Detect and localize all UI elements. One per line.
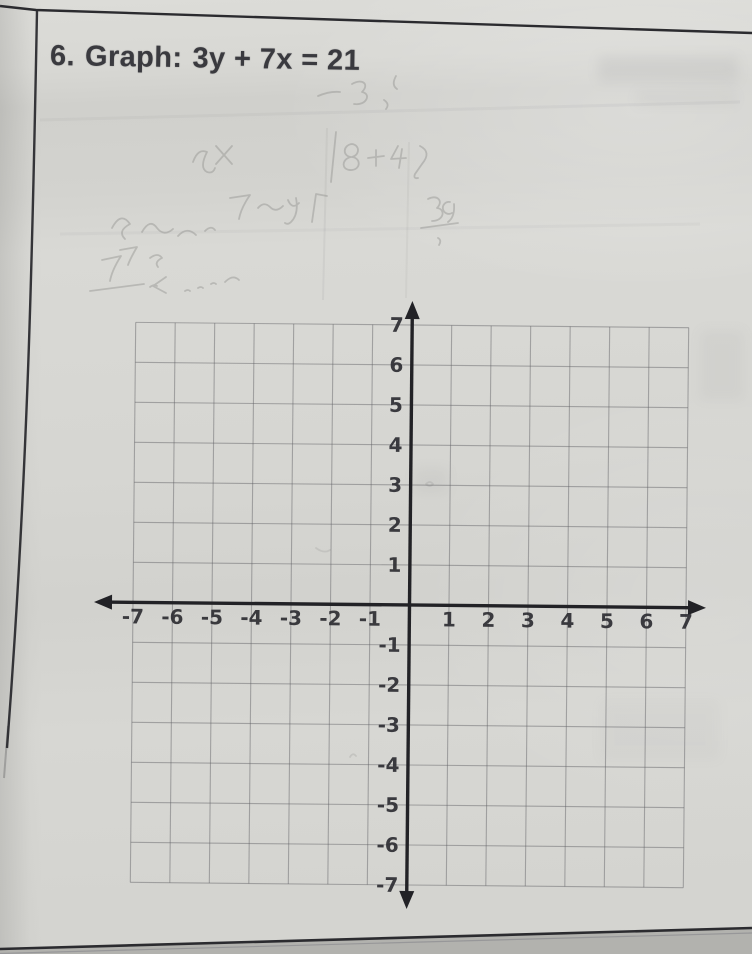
pencil-scribble	[120, 247, 137, 265]
pencil-scribble	[193, 151, 215, 172]
ghost-text-smudge	[598, 56, 738, 82]
y-axis-tick-label: 5	[389, 393, 403, 417]
y-axis-tick-label: -2	[378, 673, 400, 697]
paper-crease	[406, 142, 409, 298]
pencil-scribble	[230, 195, 250, 219]
x-axis-tick-label: -4	[240, 605, 262, 629]
coordinate-grid: 7654321-1-2-3-4-5-6-7-7-6-5-4-3-2-112345…	[87, 292, 733, 928]
x-axis-tick-label: 7	[679, 610, 693, 634]
pencil-scribble	[216, 146, 232, 164]
x-axis-tick-label: -2	[319, 606, 341, 630]
problem-number: 6.	[50, 40, 75, 72]
x-axis-tick-label: -1	[359, 607, 381, 631]
y-axis-tick-label: 6	[389, 353, 403, 377]
pencil-scribble	[185, 283, 216, 291]
top-page-border-line	[0, 6, 752, 33]
pencil-scribble	[225, 277, 239, 282]
pencil-scribble	[443, 202, 454, 222]
x-axis-tick-label: 2	[481, 608, 495, 632]
x-axis-tick-label: -5	[201, 605, 223, 629]
y-axis-tick-label: 4	[388, 433, 402, 457]
x-axis-left-arrow-icon	[94, 594, 112, 609]
y-axis-tick-label: 1	[387, 553, 401, 577]
worksheet-photo: 6.Graph:3y + 7x = 21 7654321-1-2-3-4-5-6…	[0, 0, 752, 954]
pencil-scribble	[318, 92, 340, 96]
x-axis-tick-label: 6	[639, 609, 653, 633]
pencil-scribble	[331, 132, 336, 182]
pencil-scribble	[90, 284, 144, 291]
pencil-scribble	[344, 144, 359, 170]
x-axis-tick-label: -6	[161, 605, 183, 629]
x-axis-tick-label: -7	[122, 604, 144, 628]
y-axis-tick-label: -5	[377, 793, 399, 817]
bottom-page-edge	[0, 928, 752, 954]
paper-crease	[323, 128, 327, 300]
axes	[91, 298, 709, 912]
pencil-scribble	[352, 82, 367, 105]
pencil-scribble	[258, 204, 283, 210]
problem-instruction: Graph:	[85, 41, 183, 75]
y-axis-tick-label: -4	[377, 753, 399, 777]
y-axis-down-arrow-icon	[399, 891, 414, 909]
pencil-scribble	[438, 238, 440, 245]
pencil-scribble	[391, 146, 406, 168]
pencil-scribble	[112, 218, 130, 239]
pencil-scribble	[102, 256, 121, 281]
pencil-scribble	[368, 150, 384, 166]
pencil-scribble	[285, 198, 299, 224]
x-axis-tick-label: 1	[442, 607, 456, 631]
problem-equation: 3y + 7x = 21	[192, 42, 360, 77]
x-axis-tick-label: 4	[560, 608, 574, 632]
left-page-border-line	[7, 11, 37, 748]
problem-title: 6.Graph:3y + 7x = 21	[50, 40, 361, 78]
y-axis-tick-label: -3	[378, 713, 400, 737]
pencil-scribble	[428, 197, 443, 221]
pencil-scribble	[153, 277, 166, 293]
y-axis-tick-label: -6	[376, 833, 398, 857]
pencil-scribble	[394, 76, 397, 89]
x-axis-tick-label: -3	[280, 606, 302, 630]
y-axis-tick-label: 2	[388, 513, 402, 537]
x-axis-tick-label: 3	[521, 608, 535, 632]
pencil-scribble	[384, 100, 388, 109]
y-axis-tick-label: 3	[388, 473, 402, 497]
y-axis-tick-label: 7	[390, 313, 404, 337]
paper-creases	[40, 102, 740, 300]
pencil-scribble	[414, 146, 426, 178]
x-axis-line	[104, 602, 698, 608]
x-axis-tick-label: 5	[600, 609, 614, 633]
lighting-band-edge	[40, 102, 740, 120]
left-page-border-fade	[4, 726, 8, 778]
pencil-scribble	[150, 255, 162, 267]
y-axis-tick-label: -1	[378, 633, 400, 657]
y-axis-tick-label: -7	[376, 873, 398, 897]
y-axis-up-arrow-icon	[405, 301, 420, 319]
